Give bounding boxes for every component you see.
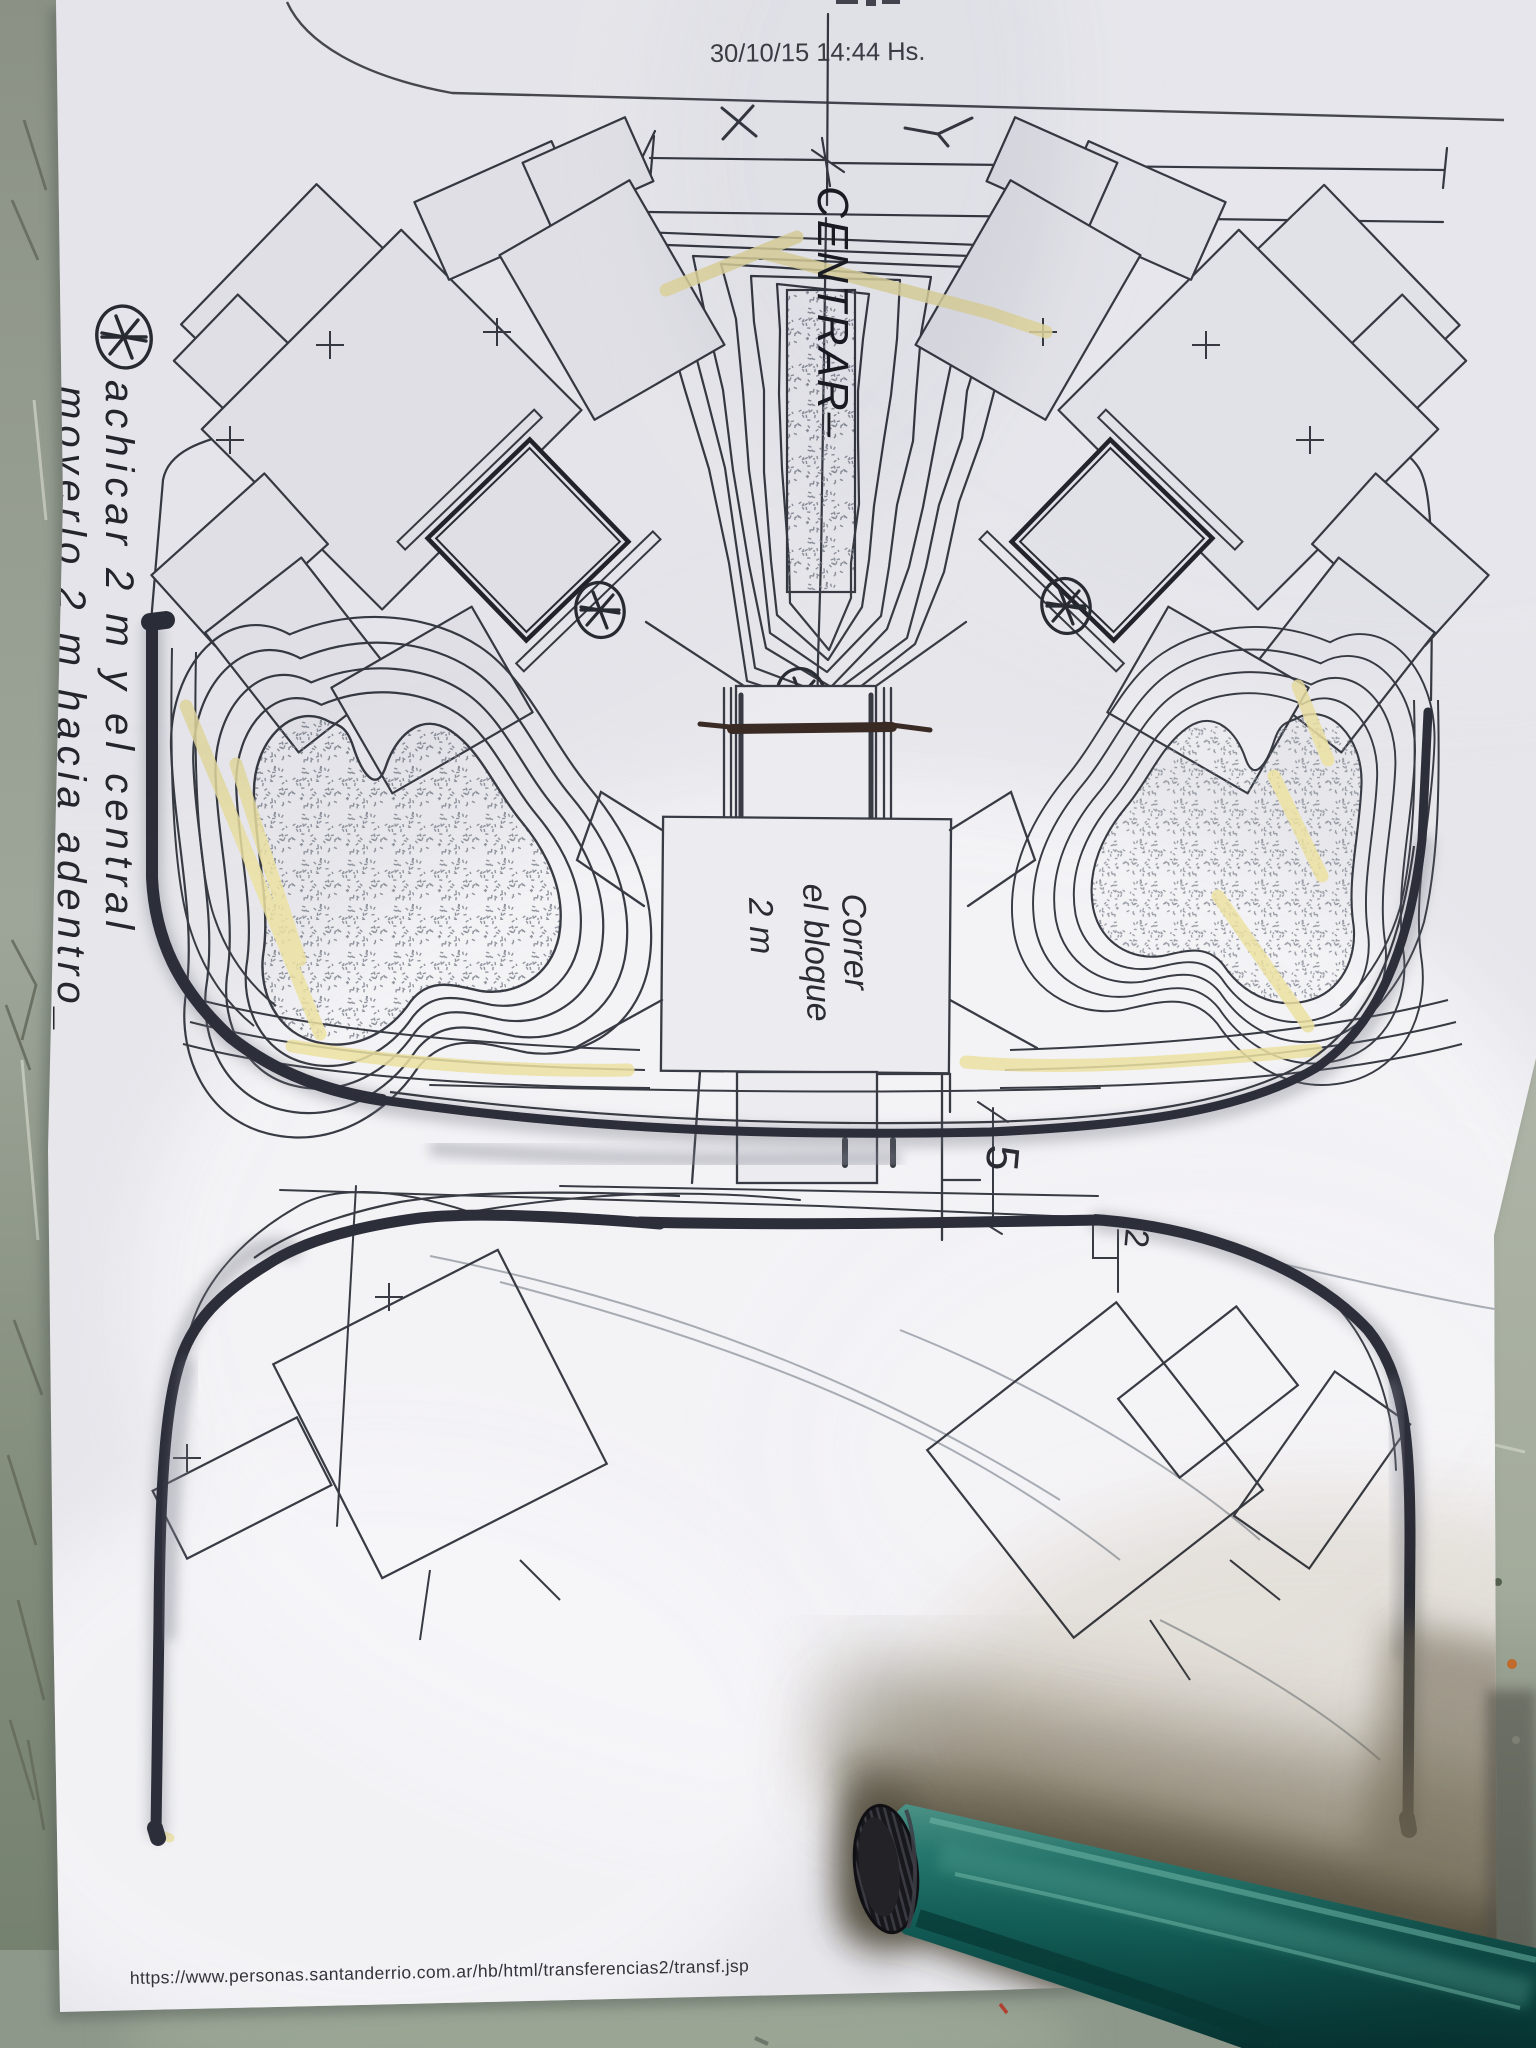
svg-text:5: 5: [976, 1143, 1030, 1173]
svg-text:el bloque: el bloque: [795, 883, 838, 1022]
svg-text:Correr: Correr: [834, 893, 875, 992]
svg-text:2 m: 2 m: [741, 896, 781, 955]
svg-text:2: 2: [1116, 1227, 1156, 1249]
